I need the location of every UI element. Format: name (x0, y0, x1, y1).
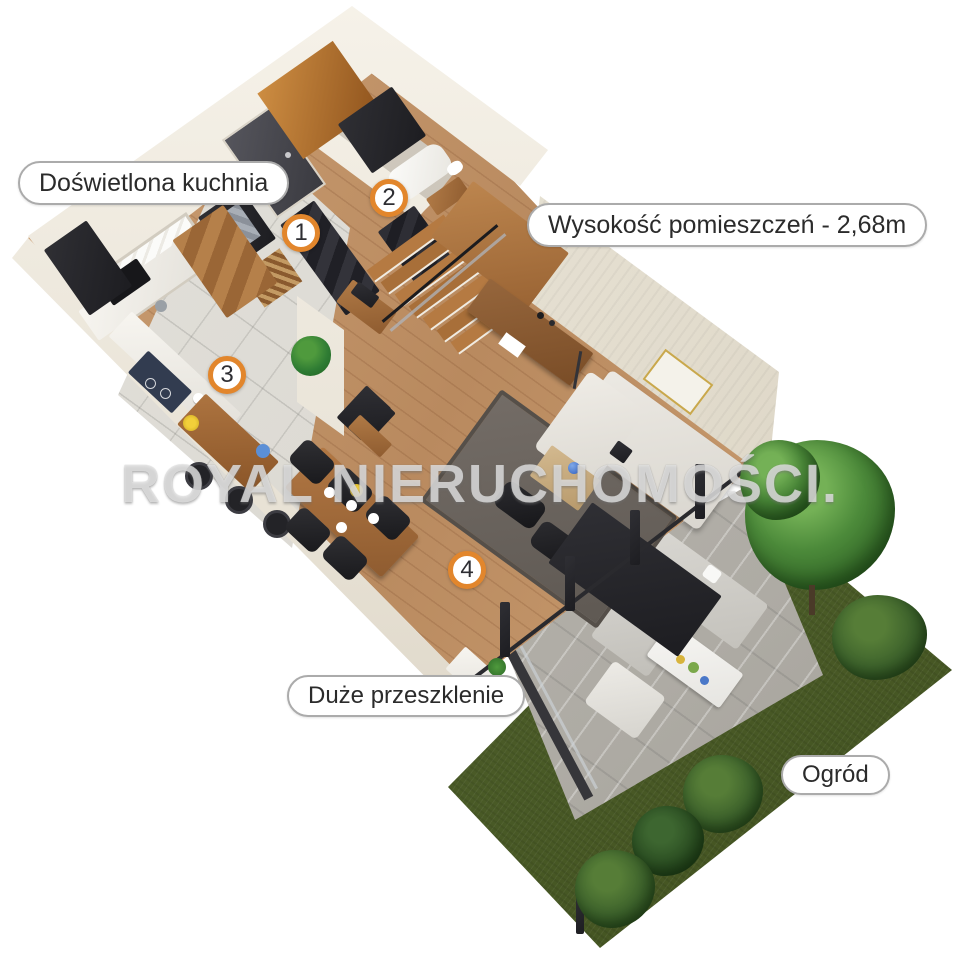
label-ceiling-height: Wysokość pomieszczeń - 2,68m (527, 203, 927, 247)
label-glazing: Duże przeszklenie (287, 675, 525, 717)
glass-wall-mullion (565, 556, 575, 611)
marker-4: 4 (448, 551, 486, 589)
floorplan-render: ROYAL NIERUCHOMOŚCI. Doświetlona kuchnia… (0, 0, 960, 960)
doorway-plant (488, 658, 506, 676)
marker-2: 2 (370, 179, 408, 217)
table-decor-plant (688, 662, 699, 673)
marker-3: 3 (208, 356, 246, 394)
table-decor-vase-blue (700, 676, 709, 685)
vase (549, 320, 555, 326)
watermark-text: ROYAL NIERUCHOMOŚCI. (0, 453, 960, 515)
label-garden: Ogród (781, 755, 890, 795)
label-garden-text: Ogród (802, 761, 869, 789)
tree-trunk (809, 585, 815, 615)
fruit-bowl-yellow (183, 415, 199, 431)
dinner-plate (336, 522, 347, 533)
label-glazing-text: Duże przeszklenie (308, 682, 504, 710)
kettle (155, 300, 167, 312)
glass-wall-mullion (630, 510, 640, 565)
garden-bush (575, 850, 655, 928)
vase (537, 312, 544, 319)
marker-1: 1 (282, 214, 320, 252)
label-ceiling-height-text: Wysokość pomieszczeń - 2,68m (548, 211, 906, 240)
label-kitchen-text: Doświetlona kuchnia (39, 169, 268, 198)
glass-wall-mullion (500, 602, 510, 657)
door-handle (285, 152, 291, 158)
hob-ring (160, 388, 171, 399)
label-kitchen: Doświetlona kuchnia (18, 161, 289, 205)
hob-ring (145, 378, 156, 389)
